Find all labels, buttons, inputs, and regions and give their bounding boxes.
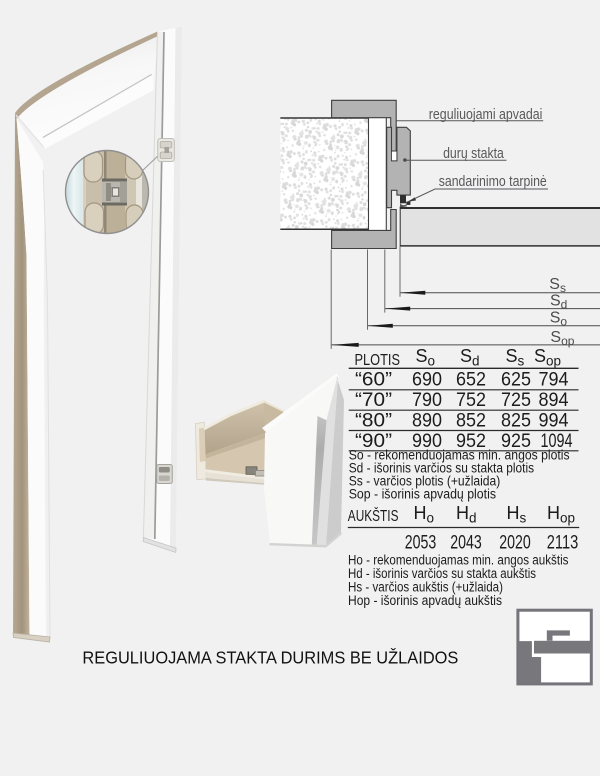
svg-text:Sop - išorinis apvadų plotis: Sop - išorinis apvadų plotis [349, 486, 497, 501]
svg-text:sandarinimo tarpinė: sandarinimo tarpinė [439, 174, 547, 190]
svg-text:2020: 2020 [499, 532, 531, 553]
svg-text:Hop - išorinis apvadų aukštis: Hop - išorinis apvadų aukštis [348, 593, 502, 608]
svg-text:“80”: “80” [355, 411, 392, 432]
svg-text:2043: 2043 [450, 532, 482, 553]
svg-text:994: 994 [539, 411, 569, 432]
svg-text:752: 752 [456, 390, 486, 411]
svg-text:852: 852 [456, 411, 486, 432]
svg-text:2053: 2053 [405, 532, 437, 553]
svg-text:825: 825 [501, 411, 531, 432]
svg-text:790: 790 [412, 390, 442, 411]
svg-text:794: 794 [539, 370, 569, 391]
svg-text:725: 725 [501, 390, 531, 411]
svg-text:2113: 2113 [547, 532, 579, 553]
svg-text:690: 690 [412, 370, 442, 391]
svg-text:AUKŠTIS: AUKŠTIS [348, 508, 399, 525]
svg-text:“60”: “60” [355, 370, 392, 391]
svg-text:“70”: “70” [355, 390, 392, 411]
svg-text:625: 625 [501, 370, 531, 391]
svg-text:durų stakta: durų stakta [443, 146, 505, 162]
svg-text:PLOTIS: PLOTIS [355, 352, 401, 369]
svg-text:890: 890 [412, 411, 442, 432]
svg-text:652: 652 [456, 370, 486, 391]
svg-text:894: 894 [539, 390, 569, 411]
svg-text:REGULIUOJAMA STAKTA DURIMS BE: REGULIUOJAMA STAKTA DURIMS BE UŽLAIDOS [82, 648, 458, 668]
